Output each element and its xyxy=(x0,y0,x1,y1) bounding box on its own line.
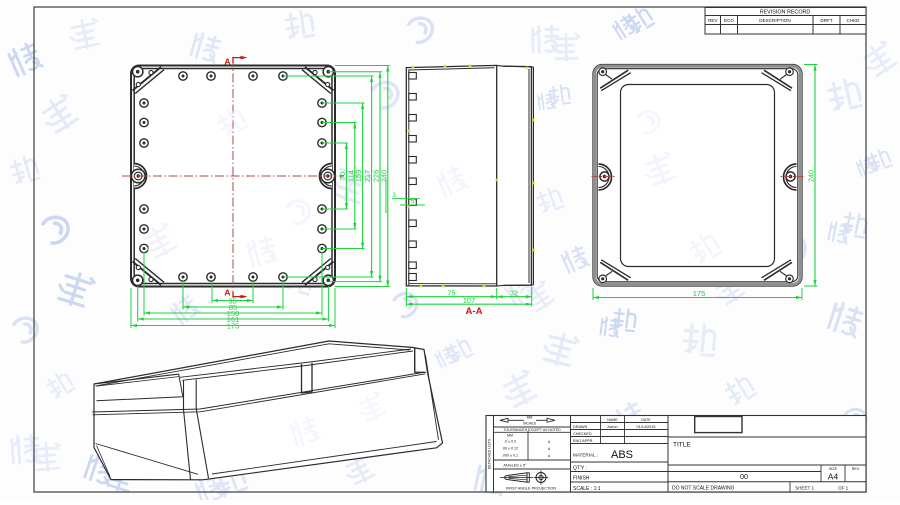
svg-text:32: 32 xyxy=(510,288,518,297)
svg-text:TITLE: TITLE xyxy=(673,442,691,449)
svg-text:SHEET 1: SHEET 1 xyxy=(795,485,815,490)
svg-text:ENG APPR.: ENG APPR. xyxy=(573,439,593,443)
svg-text:Aaron: Aaron xyxy=(607,425,617,429)
svg-text:CHECKED: CHECKED xyxy=(573,432,592,436)
svg-text:175: 175 xyxy=(693,289,706,298)
svg-text:107: 107 xyxy=(463,296,476,305)
svg-text:MATERIAL :: MATERIAL : xyxy=(573,453,598,458)
svg-text:ECO: ECO xyxy=(724,18,734,23)
svg-text:FIRST ANGLE PROJECTION: FIRST ANGLE PROJECTION xyxy=(506,487,556,491)
svg-text:DRAWN: DRAWN xyxy=(573,425,587,429)
svg-text:.000 ± 0.1: .000 ± 0.1 xyxy=(502,454,518,458)
svg-text:175: 175 xyxy=(227,321,240,330)
svg-text:DO NOT SCALE DRAWING: DO NOT SCALE DRAWING xyxy=(672,485,735,491)
svg-text:NAME: NAME xyxy=(607,418,618,422)
svg-text:01/14/2015: 01/14/2015 xyxy=(636,425,655,429)
svg-text:MM: MM xyxy=(527,415,533,419)
svg-text:5: 5 xyxy=(411,199,415,206)
svg-text:DATE: DATE xyxy=(641,418,651,422)
svg-text:INCHES: INCHES xyxy=(523,422,537,426)
svg-text:A: A xyxy=(224,57,230,67)
svg-text:OF 1: OF 1 xyxy=(838,485,849,490)
svg-text:CHKD: CHKD xyxy=(846,18,860,23)
svg-text:REVISION RECORD: REVISION RECORD xyxy=(760,10,811,16)
svg-text:ANGLES ± 5°: ANGLES ± 5° xyxy=(503,463,527,467)
svg-text:MM: MM xyxy=(507,434,513,438)
svg-text:FINISH: FINISH xyxy=(573,476,590,482)
svg-text:QT’Y :: QT’Y : xyxy=(573,466,587,472)
svg-text:SIZE: SIZE xyxy=(829,467,838,471)
svg-text:3: 3 xyxy=(392,192,396,199)
svg-text:240: 240 xyxy=(807,170,816,183)
svg-text:ABS: ABS xyxy=(611,449,633,461)
svg-text:A-A: A-A xyxy=(466,306,483,317)
svg-text:DETACHED LISTS: DETACHED LISTS xyxy=(488,438,492,469)
svg-text:DESCRIPTION: DESCRIPTION xyxy=(759,18,790,23)
svg-text:00: 00 xyxy=(740,474,748,481)
svg-text:.00 ± 0.12: .00 ± 0.12 xyxy=(502,447,518,451)
svg-text:A4: A4 xyxy=(828,472,839,482)
svg-text:75: 75 xyxy=(447,288,455,297)
svg-text:.0 ± 0.3: .0 ± 0.3 xyxy=(504,440,516,444)
svg-text:TOLERANCES EXCEPT AS NOTED: TOLERANCES EXCEPT AS NOTED xyxy=(503,428,561,432)
svg-text:SCALE : 1:1: SCALE : 1:1 xyxy=(573,486,601,492)
svg-text:159: 159 xyxy=(354,170,363,183)
svg-text:REV: REV xyxy=(852,467,860,471)
svg-text:REV: REV xyxy=(708,18,718,23)
svg-text:DRFT: DRFT xyxy=(820,18,832,23)
svg-text:240: 240 xyxy=(379,170,388,183)
